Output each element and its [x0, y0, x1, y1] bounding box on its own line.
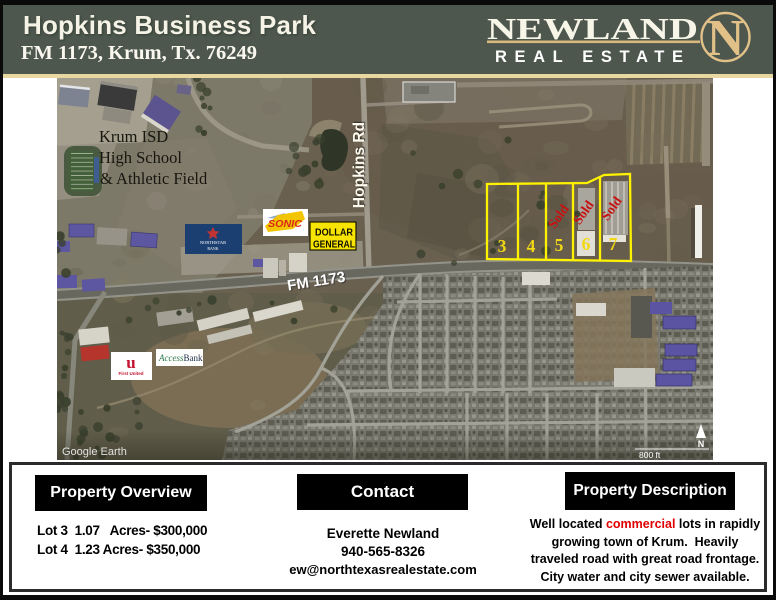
svg-text:DOLLAR: DOLLAR — [315, 227, 353, 239]
svg-text:First United: First United — [118, 371, 143, 376]
svg-text:N: N — [698, 439, 705, 449]
svg-text:Hopkins Rd: Hopkins Rd — [351, 122, 368, 208]
svg-text:AccessBank: AccessBank — [158, 353, 203, 363]
svg-text:NORTHSTAR: NORTHSTAR — [200, 240, 226, 245]
svg-text:4: 4 — [527, 236, 536, 256]
svg-text:& Athletic Field: & Athletic Field — [100, 169, 208, 188]
svg-text:7: 7 — [609, 234, 618, 254]
svg-text:N: N — [707, 10, 745, 67]
svg-text:Google Earth: Google Earth — [62, 446, 127, 458]
svg-text:3: 3 — [498, 236, 507, 256]
svg-text:High School: High School — [99, 148, 182, 167]
svg-text:Krum ISD: Krum ISD — [99, 127, 168, 146]
svg-text:u: u — [126, 353, 135, 372]
svg-text:6: 6 — [582, 234, 591, 254]
svg-text:5: 5 — [555, 235, 564, 255]
svg-text:GENERAL: GENERAL — [313, 239, 355, 251]
svg-text:REAL ESTATE: REAL ESTATE — [495, 48, 691, 66]
svg-text:BANK: BANK — [207, 246, 218, 251]
svg-text:SONIC: SONIC — [268, 218, 302, 230]
svg-text:800 ft: 800 ft — [639, 450, 661, 460]
